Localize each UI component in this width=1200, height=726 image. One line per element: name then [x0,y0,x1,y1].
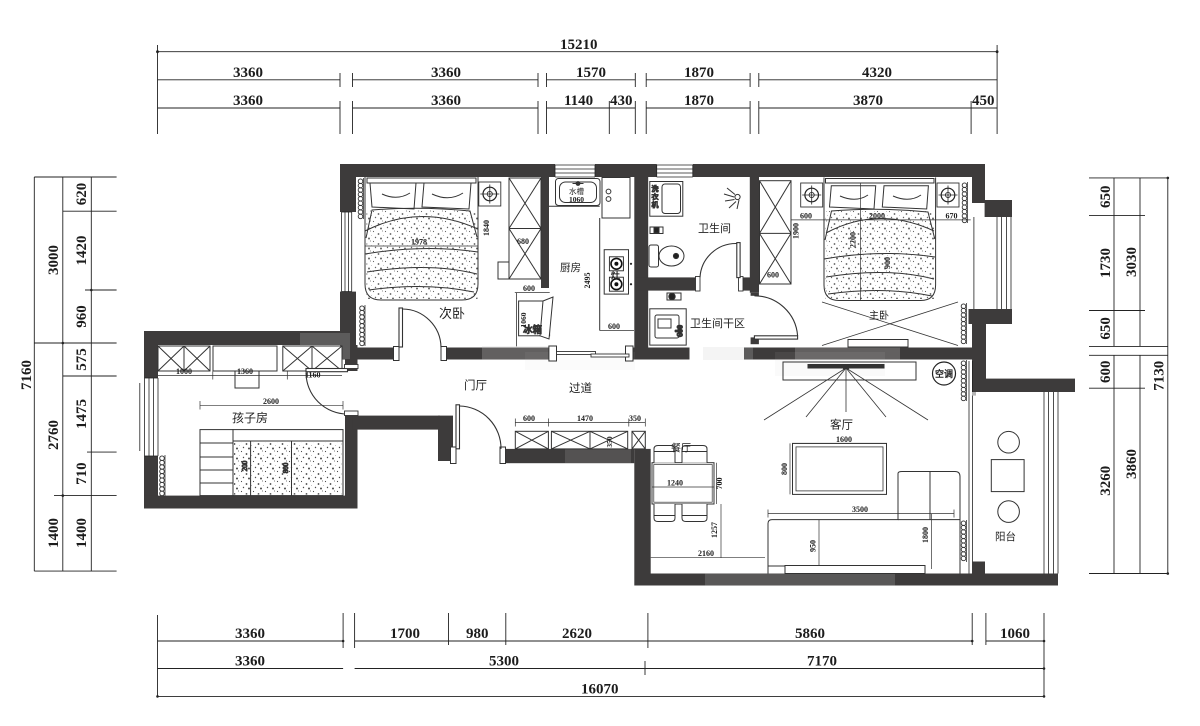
svg-text:3870: 3870 [853,93,883,109]
svg-text:5300: 5300 [489,654,519,670]
svg-text:7130: 7130 [1152,361,1168,391]
svg-text:350: 350 [629,414,641,423]
svg-text:710: 710 [74,462,90,485]
svg-text:450: 450 [972,93,995,109]
svg-text:过道: 过道 [569,381,592,395]
svg-text:350: 350 [605,436,614,448]
svg-text:机: 机 [652,200,659,209]
svg-text:1700: 1700 [390,626,420,642]
svg-text:1870: 1870 [684,93,714,109]
svg-text:2760: 2760 [46,420,62,450]
svg-text:200: 200 [241,460,249,471]
svg-text:1000: 1000 [176,367,192,376]
svg-text:3360: 3360 [233,93,263,109]
svg-text:1400: 1400 [74,518,90,548]
svg-text:2200: 2200 [849,232,858,248]
svg-text:空调: 空调 [935,368,953,379]
svg-text:3360: 3360 [235,654,265,670]
svg-text:次卧: 次卧 [439,306,465,321]
svg-text:980: 980 [466,626,489,642]
svg-text:1257: 1257 [710,522,719,538]
svg-text:3000: 3000 [46,245,62,275]
svg-text:1840: 1840 [482,220,491,236]
svg-text:680: 680 [517,237,529,246]
svg-text:1060: 1060 [569,195,584,204]
svg-text:1475: 1475 [74,399,90,429]
svg-text:3360: 3360 [233,65,263,81]
svg-text:700: 700 [715,478,724,490]
svg-text:900: 900 [883,257,892,269]
svg-text:2495: 2495 [583,273,592,289]
svg-text:1600: 1600 [836,435,852,444]
svg-text:3500: 3500 [852,505,868,514]
svg-text:15210: 15210 [560,37,598,53]
svg-text:3860: 3860 [1124,449,1140,479]
svg-text:800: 800 [780,463,789,475]
svg-text:600: 600 [676,325,685,337]
svg-text:厨房: 厨房 [560,261,581,274]
svg-text:灶: 灶 [611,270,620,281]
svg-text:960: 960 [74,305,90,328]
svg-text:620: 620 [74,183,90,206]
svg-text:孩子房: 孩子房 [232,410,268,425]
svg-text:3360: 3360 [431,93,461,109]
svg-text:600: 600 [767,271,779,280]
svg-text:1470: 1470 [577,414,593,423]
svg-text:1900: 1900 [792,223,801,239]
svg-text:1400: 1400 [46,518,62,548]
svg-text:2620: 2620 [562,626,592,642]
svg-text:1360: 1360 [237,367,253,376]
svg-text:冰箱: 冰箱 [523,324,542,336]
svg-text:3260: 3260 [1098,466,1114,496]
svg-text:主卧: 主卧 [869,309,889,322]
svg-text:950: 950 [809,540,818,552]
svg-text:卫生间: 卫生间 [698,221,731,235]
svg-text:1800: 1800 [921,527,930,543]
svg-text:1570: 1570 [576,65,606,81]
svg-text:5860: 5860 [795,626,825,642]
svg-text:600: 600 [523,414,535,423]
svg-text:430: 430 [610,93,633,109]
svg-text:650: 650 [1098,185,1114,208]
svg-text:餐厅: 餐厅 [671,442,691,455]
svg-text:7160: 7160 [19,360,35,390]
svg-text:1140: 1140 [564,93,593,109]
svg-text:卫生间干区: 卫生间干区 [690,316,745,330]
svg-text:4320: 4320 [862,65,892,81]
svg-text:1240: 1240 [667,479,683,488]
svg-text:1870: 1870 [684,65,714,81]
svg-text:600: 600 [523,284,535,293]
svg-text:600: 600 [608,322,620,331]
svg-text:650: 650 [1098,317,1114,340]
svg-text:1978: 1978 [411,238,427,247]
svg-text:3360: 3360 [431,65,461,81]
svg-text:1420: 1420 [74,236,90,266]
svg-text:1730: 1730 [1098,248,1114,278]
svg-text:670: 670 [946,212,958,221]
svg-text:1060: 1060 [1000,626,1030,642]
svg-text:门厅: 门厅 [464,378,487,392]
svg-text:2160: 2160 [698,549,714,558]
svg-text:客厅: 客厅 [830,418,853,432]
svg-text:800: 800 [282,462,290,473]
svg-text:3030: 3030 [1124,247,1140,277]
svg-text:3360: 3360 [235,626,265,642]
svg-text:7170: 7170 [807,654,837,670]
svg-text:2600: 2600 [263,397,279,406]
svg-text:600: 600 [800,212,812,221]
svg-text:16070: 16070 [581,682,619,698]
svg-text:575: 575 [74,348,90,371]
svg-text:洗: 洗 [652,184,659,193]
svg-text:600: 600 [1098,360,1114,383]
svg-text:阳台: 阳台 [995,530,1016,543]
svg-text:衣: 衣 [652,192,659,201]
